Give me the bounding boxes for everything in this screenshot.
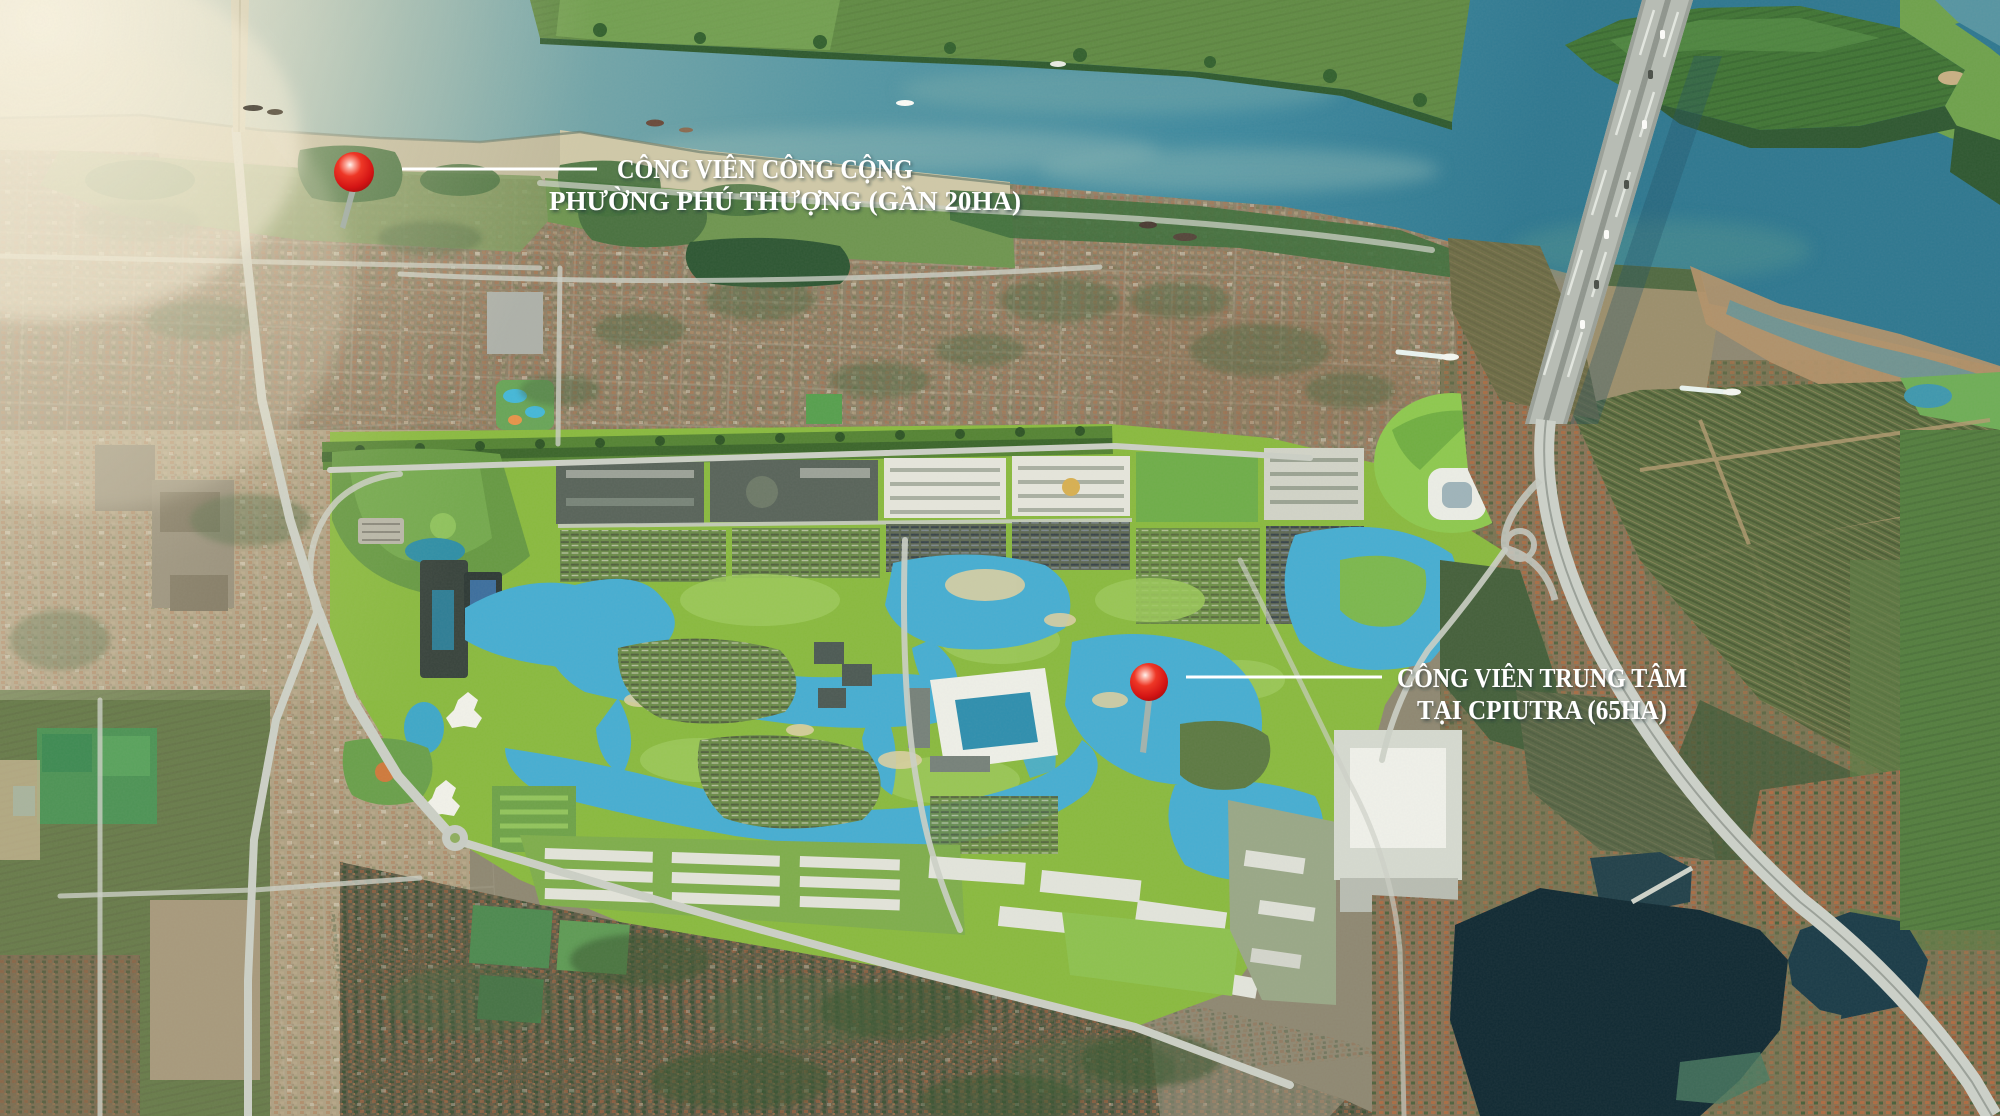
- svg-text:CÔNG VIÊN TRUNG TÂM: CÔNG VIÊN TRUNG TÂM: [1397, 663, 1687, 693]
- svg-text:TẠI CPIUTRA (65HA): TẠI CPIUTRA (65HA): [1417, 695, 1667, 725]
- svg-text:PHƯỜNG PHÚ THƯỢNG (GẦN 20HA): PHƯỜNG PHÚ THƯỢNG (GẦN 20HA): [549, 185, 1021, 216]
- svg-text:CÔNG VIÊN CÔNG CỘNG: CÔNG VIÊN CÔNG CỘNG: [617, 154, 913, 184]
